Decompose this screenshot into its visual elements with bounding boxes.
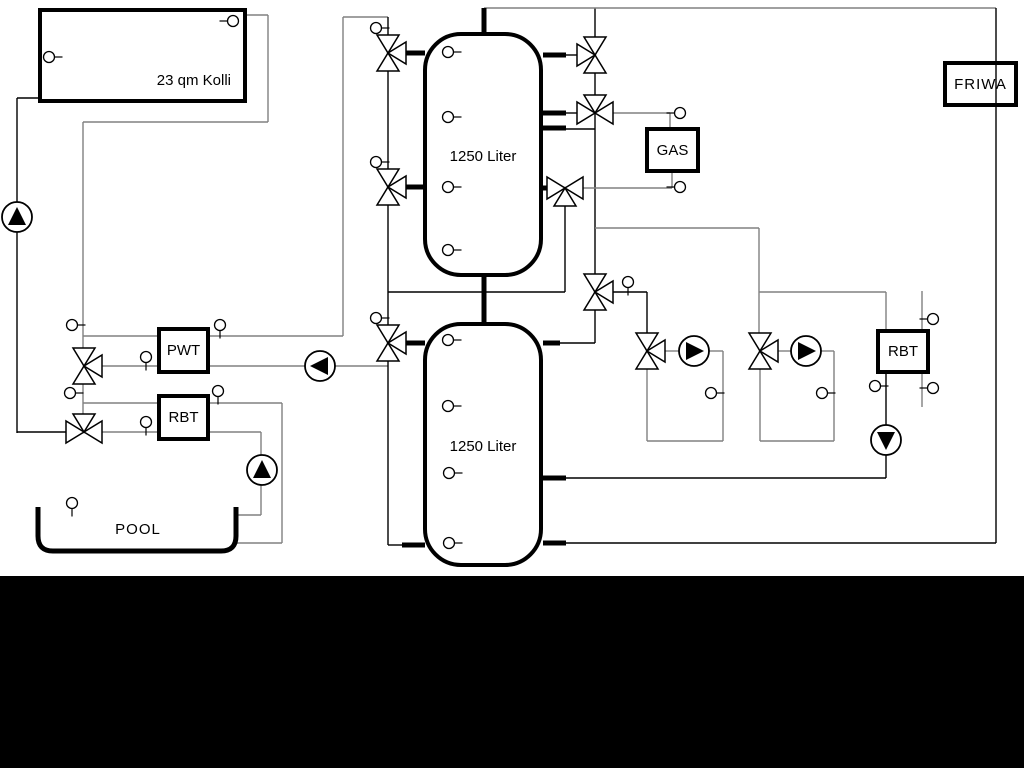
temp-sensor-icon: [215, 320, 226, 331]
temp-sensor-icon: [443, 245, 454, 256]
temp-sensor-icon: [67, 320, 78, 331]
temp-sensor-icon: [65, 388, 76, 399]
schematic-diagram: 23 qm Kolli 1250 Liter 1250 Liter GAS FR…: [0, 0, 1024, 768]
temp-sensor-icon: [213, 386, 224, 397]
temp-sensor-icon: [228, 16, 239, 27]
temp-sensor-icon: [928, 383, 939, 394]
temp-sensor-icon: [67, 498, 78, 509]
temp-sensor-icon: [675, 108, 686, 119]
temp-sensor-icon: [141, 417, 152, 428]
temp-sensor-icon: [443, 47, 454, 58]
temp-sensor-icon: [706, 388, 717, 399]
temp-sensor-icon: [371, 23, 382, 34]
temp-sensor-icon: [141, 352, 152, 363]
temp-sensor-icon: [371, 157, 382, 168]
temp-sensor-icon: [623, 277, 634, 288]
temp-sensor-icon: [44, 52, 55, 63]
temp-sensor-icon: [443, 182, 454, 193]
temp-sensor-icon: [870, 381, 881, 392]
temp-sensor-icon: [928, 314, 939, 325]
footer-black-band: [0, 576, 1024, 768]
temp-sensor-icon: [444, 468, 455, 479]
temp-sensor-icon: [443, 335, 454, 346]
temp-sensor-icon: [444, 538, 455, 549]
temp-sensor-icon: [371, 313, 382, 324]
temp-sensor-icon: [443, 401, 454, 412]
pool-basin: [38, 507, 236, 551]
temp-sensor-icon: [817, 388, 828, 399]
temp-sensor-icon: [443, 112, 454, 123]
temp-sensor-icon: [675, 182, 686, 193]
